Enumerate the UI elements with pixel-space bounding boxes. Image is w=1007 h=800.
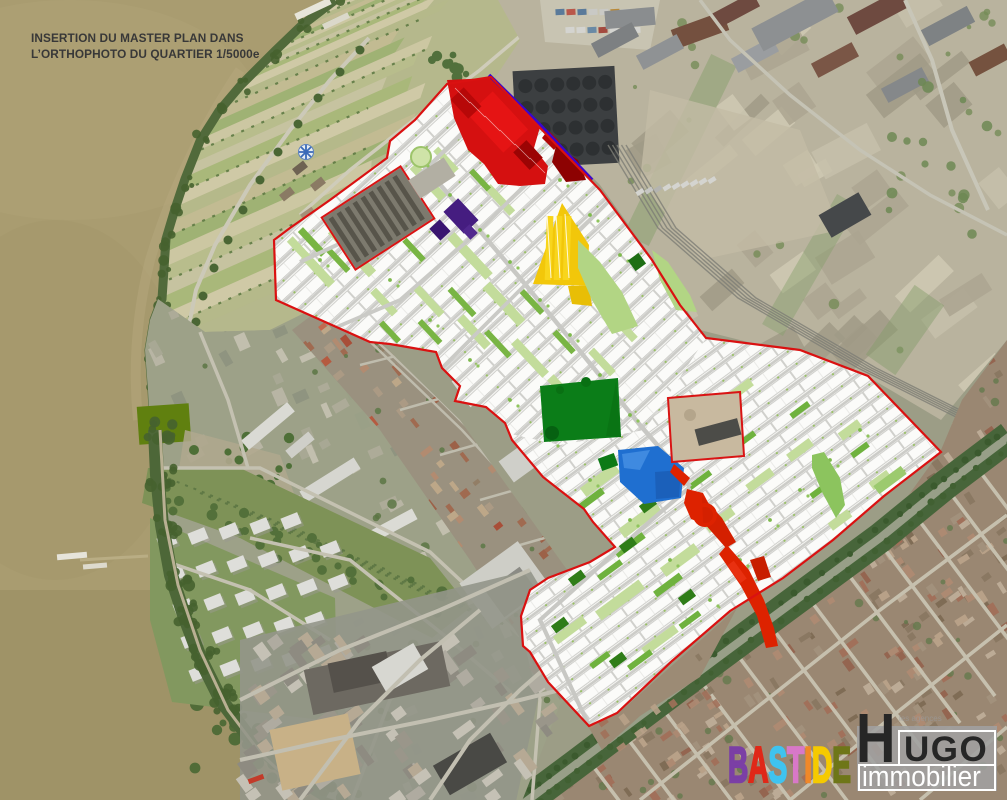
svg-text:BASTIDE: BASTIDE (728, 736, 851, 793)
svg-text:L’ORTHOPHOTO DU QUARTIER 1/500: L’ORTHOPHOTO DU QUARTIER 1/5000e (31, 47, 260, 61)
svg-text:les agences: les agences (899, 714, 942, 723)
svg-text:INSERTION DU MASTER PLAN DANS: INSERTION DU MASTER PLAN DANS (31, 31, 244, 45)
svg-text:immobilier: immobilier (862, 760, 981, 793)
